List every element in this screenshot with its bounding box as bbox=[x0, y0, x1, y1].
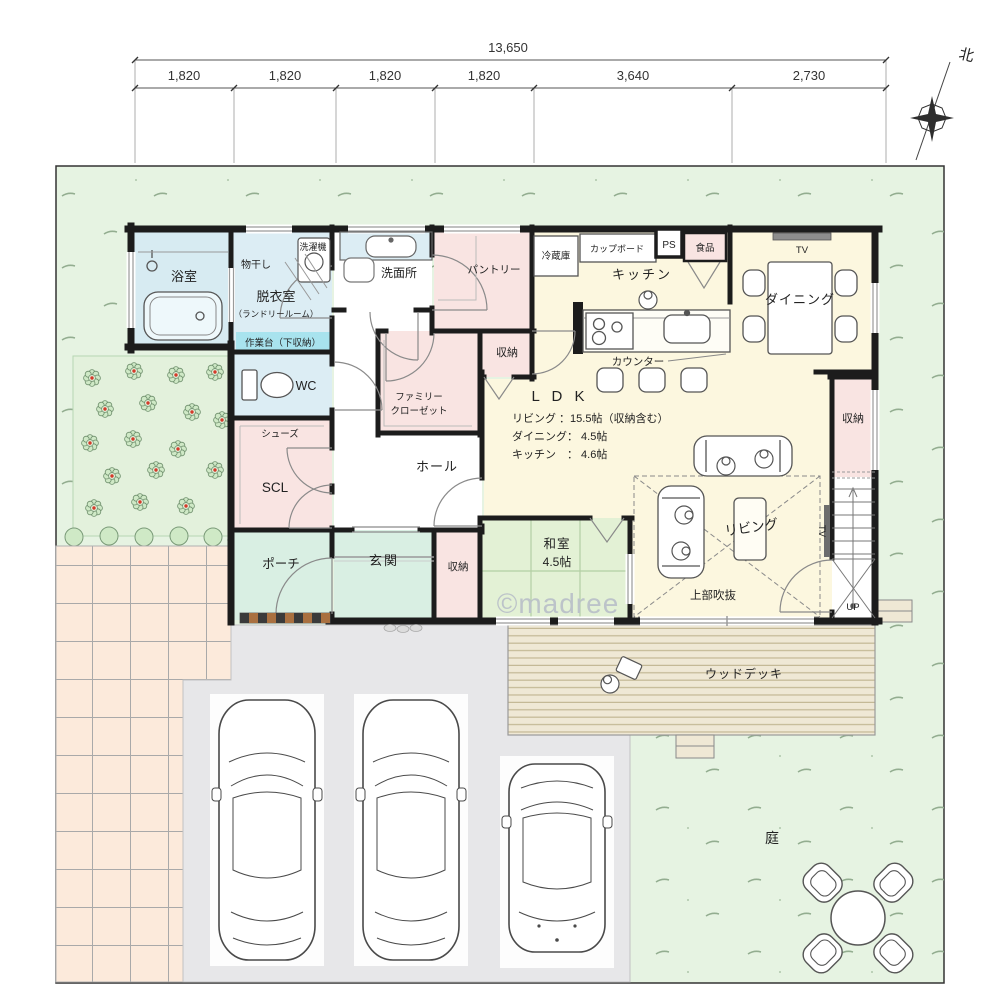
toilet bbox=[242, 370, 293, 400]
floor-plan-svg: 13,650 1,820 1,820 1,820 1,820 3,640 2,7… bbox=[0, 0, 1000, 1000]
right-storage-floor bbox=[832, 377, 875, 477]
porch-floor bbox=[232, 530, 332, 620]
ldk-living-line: リビング ：15.5帖（収納含む） bbox=[512, 411, 668, 425]
dimension-labels: 13,650 1,820 1,820 1,820 1,820 3,640 2,7… bbox=[168, 40, 826, 83]
right-storage-label: 収納 bbox=[842, 412, 864, 425]
car-3 bbox=[502, 764, 612, 952]
wood-deck-label: ウッドデッキ bbox=[705, 666, 783, 681]
fridge-label: 冷蔵庫 bbox=[542, 250, 571, 262]
watermark: ©madree bbox=[497, 588, 620, 619]
worktop-label: 作業台（下収納） bbox=[245, 337, 321, 349]
flower-bed bbox=[73, 356, 233, 536]
car-2 bbox=[356, 700, 466, 960]
person-sofa-3 bbox=[675, 506, 693, 524]
family-closet-label-2: クローゼット bbox=[390, 405, 447, 417]
car-1 bbox=[212, 700, 322, 960]
washitsu-size-label: 4.5帖 bbox=[543, 554, 572, 569]
dim-seg-6: 2,730 bbox=[793, 68, 826, 83]
floor-plan-page: 13,650 1,820 1,820 1,820 1,820 3,640 2,7… bbox=[0, 0, 1000, 1000]
cupboard-label: カップボード bbox=[590, 244, 644, 254]
family-closet-floor bbox=[378, 331, 480, 433]
ldk-kitchen-line: キッチン ： 4.6帖 bbox=[512, 448, 607, 461]
dressing-sub-label: （ランドリールーム） bbox=[234, 309, 319, 319]
dressing-label: 脱衣室 bbox=[256, 289, 295, 304]
scl-label: SCL bbox=[262, 480, 289, 495]
tv-dining-label: TV bbox=[796, 245, 809, 256]
ps-label: PS bbox=[662, 240, 676, 251]
dim-seg-1: 1,820 bbox=[168, 68, 201, 83]
ldk-dining-line: ダイニング： 4.5帖 bbox=[512, 429, 607, 443]
pantry-label: パントリー bbox=[467, 264, 520, 276]
porch-tile-strip bbox=[240, 613, 330, 623]
kitchen-wall-nub bbox=[573, 302, 583, 354]
ldk-title: L D K bbox=[532, 388, 589, 405]
tv-living-label: TV bbox=[816, 525, 827, 538]
washroom-label: 洗面所 bbox=[381, 266, 417, 280]
bath-label: 浴室 bbox=[171, 269, 197, 284]
kitchen-label: キッチン bbox=[612, 267, 672, 282]
entrance-storage-label: 収納 bbox=[448, 560, 469, 573]
person-kitchen bbox=[639, 291, 657, 309]
void-label: 上部吹抜 bbox=[690, 588, 736, 602]
north-compass: 北 bbox=[910, 45, 976, 160]
wc-label: WC bbox=[296, 379, 317, 393]
food-label: 食品 bbox=[695, 242, 714, 254]
dim-seg-5: 3,640 bbox=[617, 68, 650, 83]
family-closet-label-1: ファミリー bbox=[395, 392, 443, 403]
up-label: UP bbox=[846, 602, 859, 613]
dim-seg-2: 1,820 bbox=[269, 68, 302, 83]
stepping-stones bbox=[384, 625, 422, 633]
dimension-lines bbox=[132, 57, 889, 163]
porch-label: ポーチ bbox=[262, 557, 300, 571]
washitsu-label: 和室 bbox=[543, 536, 570, 551]
dim-seg-3: 1,820 bbox=[369, 68, 402, 83]
person-sofa-4 bbox=[672, 542, 690, 560]
garden-label: 庭 bbox=[765, 830, 779, 846]
dim-seg-4: 1,820 bbox=[468, 68, 501, 83]
counter-label: カウンター bbox=[612, 356, 665, 368]
entrance-label: 玄関 bbox=[369, 553, 399, 568]
person-sofa-1 bbox=[717, 457, 735, 475]
person-sofa-2 bbox=[755, 450, 773, 468]
wood-deck bbox=[508, 625, 875, 735]
entrance-storage-floor bbox=[434, 530, 480, 620]
hall-label: ホール bbox=[416, 459, 458, 474]
washer-label: 洗濯機 bbox=[299, 241, 326, 252]
pantry-floor bbox=[434, 229, 532, 331]
dining-label: ダイニング bbox=[765, 292, 835, 307]
north-label: 北 bbox=[957, 45, 976, 65]
entrance-floor bbox=[334, 530, 434, 620]
ldk-storage-label: 収納 bbox=[496, 346, 518, 359]
monohoshi-label: 物干し bbox=[241, 258, 271, 271]
shoes-label: シューズ bbox=[261, 428, 299, 440]
dim-total: 13,650 bbox=[488, 40, 528, 55]
